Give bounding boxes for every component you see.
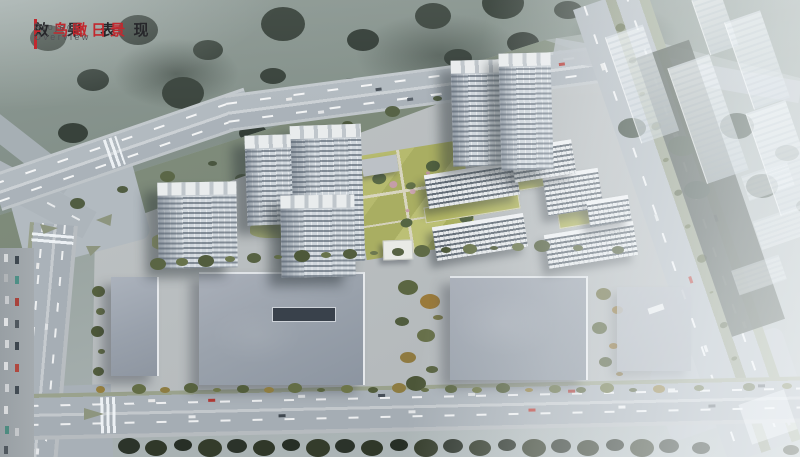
commercial-building-east [450,276,588,380]
boulevard-tree-row [132,384,146,394]
page-subtitle: Project Overview [34,22,91,42]
road-cars [36,263,40,269]
commercial-west-trees [92,286,105,297]
residential-tower [157,181,237,268]
residential-tower [451,59,506,166]
commercial-building-center [199,272,365,385]
boulevard-crosswalk [100,397,117,433]
roof-skylight-slot [272,307,336,322]
crosswalk [31,232,74,247]
roadside-parking-strip [0,248,34,457]
commercial-building-faded [617,287,691,371]
ghost-context-slab [753,204,800,250]
aerial-rendering-canvas: 效 果 表 现 - 鸟瞰日景 Project Overview [0,0,800,457]
avenue-cars [600,63,605,71]
park-flowering-trees [389,180,398,188]
boulevard-cars [148,399,155,402]
entrance-pavilion [383,239,414,260]
highway-edge-trees [70,198,85,209]
commercial-east-trees [596,288,611,300]
residential-tower [498,52,553,170]
commercial-center-trees [398,280,418,295]
parked-cars [4,254,8,262]
highway-crosswalk [103,136,126,169]
residential-tower [280,194,355,277]
residential-front-tree-row [150,258,166,270]
foreground-dark-tree-band [118,438,140,454]
highway-cars [286,97,292,101]
commercial-building-west [111,277,159,376]
